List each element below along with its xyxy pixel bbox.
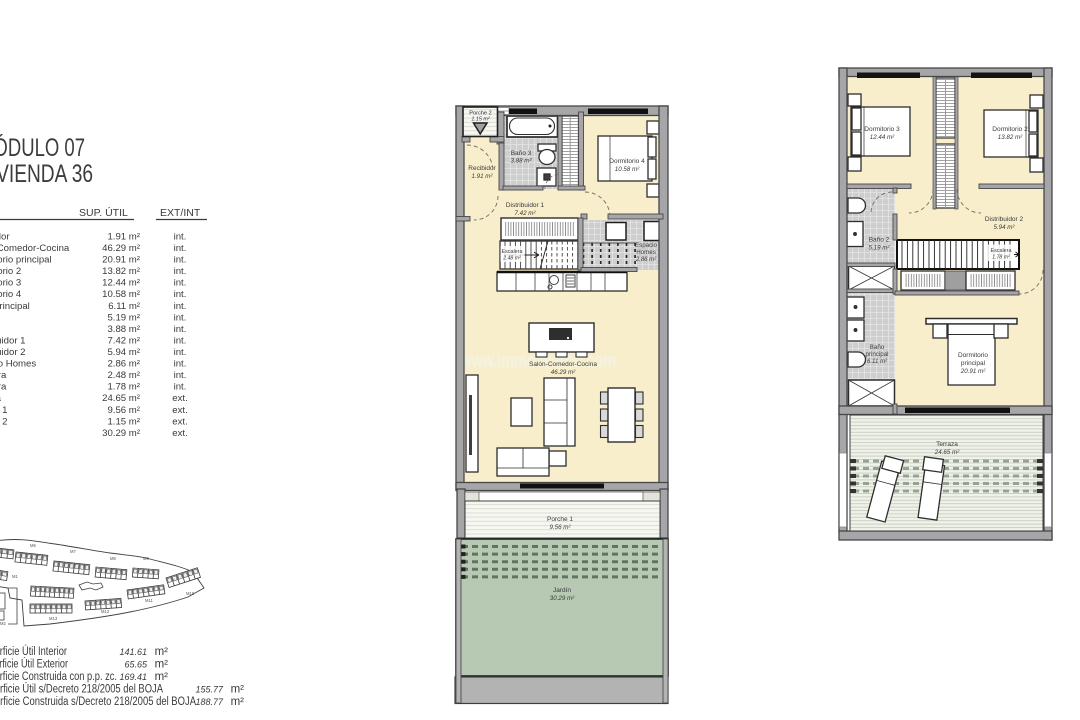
svg-text:principal: principal bbox=[961, 360, 986, 367]
svg-text:int.: int. bbox=[174, 347, 187, 358]
svg-text:Distribuidor 2: Distribuidor 2 bbox=[985, 216, 1024, 223]
svg-text:Salón-Comedor-Cocina: Salón-Comedor-Cocina bbox=[529, 361, 597, 368]
svg-text:6.11 m²: 6.11 m² bbox=[867, 359, 888, 365]
svg-text:20.91 m²: 20.91 m² bbox=[960, 368, 986, 375]
svg-text:1.91 m²: 1.91 m² bbox=[472, 173, 494, 180]
svg-text:M6: M6 bbox=[30, 543, 36, 548]
svg-text:169.41: 169.41 bbox=[119, 672, 147, 682]
svg-text:M2: M2 bbox=[0, 621, 6, 626]
svg-text:Espacio: Espacio bbox=[635, 242, 658, 249]
svg-text:int.: int. bbox=[174, 335, 187, 346]
svg-text:20.91 m²: 20.91 m² bbox=[102, 255, 141, 266]
svg-text:3.88 m²: 3.88 m² bbox=[107, 324, 140, 335]
svg-text:Distribuidor 1: Distribuidor 1 bbox=[0, 335, 26, 346]
svg-text:188.77: 188.77 bbox=[195, 697, 224, 707]
svg-text:m²: m² bbox=[231, 684, 245, 696]
svg-text:5.94 m²: 5.94 m² bbox=[107, 347, 140, 358]
svg-text:24.65 m²: 24.65 m² bbox=[934, 449, 960, 456]
svg-text:12.44 m²: 12.44 m² bbox=[870, 134, 895, 141]
svg-text:5.19 m²: 5.19 m² bbox=[869, 245, 891, 252]
svg-text:Escalera: Escalera bbox=[0, 382, 7, 393]
svg-text:46.29 m²: 46.29 m² bbox=[102, 243, 141, 254]
svg-text:m²: m² bbox=[155, 671, 169, 683]
svg-text:9.56 m²: 9.56 m² bbox=[107, 405, 140, 416]
svg-text:Espacio Homes: Espacio Homes bbox=[0, 359, 36, 370]
svg-text:Superficie Útil s/Decreto 218/: Superficie Útil s/Decreto 218/2005 del B… bbox=[0, 683, 163, 696]
svg-text:65.65: 65.65 bbox=[124, 660, 148, 670]
svg-text:int.: int. bbox=[174, 301, 187, 312]
svg-text:int.: int. bbox=[174, 312, 187, 323]
svg-text:30.29 m²: 30.29 m² bbox=[550, 595, 575, 602]
svg-text:Dormitorio 4: Dormitorio 4 bbox=[609, 158, 645, 165]
svg-text:Recibidor: Recibidor bbox=[0, 232, 10, 243]
svg-text:6.11 m²: 6.11 m² bbox=[108, 301, 141, 312]
svg-text:Porche 1: Porche 1 bbox=[547, 516, 573, 523]
svg-text:Distribuidor 2: Distribuidor 2 bbox=[0, 347, 26, 358]
svg-text:M7: M7 bbox=[70, 549, 76, 554]
svg-text:30.29 m²: 30.29 m² bbox=[102, 428, 141, 439]
svg-text:M12: M12 bbox=[101, 609, 110, 614]
svg-text:int.: int. bbox=[174, 370, 187, 381]
svg-text:2.86 m²: 2.86 m² bbox=[635, 257, 657, 263]
svg-text:Homes: Homes bbox=[636, 249, 656, 256]
svg-text:EXT/INT: EXT/INT bbox=[160, 207, 201, 219]
svg-text:Terraza: Terraza bbox=[936, 441, 958, 448]
svg-text:Jardín: Jardín bbox=[553, 587, 571, 594]
svg-text:10.58 m²: 10.58 m² bbox=[102, 289, 141, 300]
svg-text:Escalera: Escalera bbox=[991, 248, 1012, 254]
svg-text:Baño 2: Baño 2 bbox=[869, 237, 890, 244]
svg-text:m²: m² bbox=[155, 659, 169, 671]
svg-text:Baño 3: Baño 3 bbox=[511, 150, 532, 157]
svg-text:5.94 m²: 5.94 m² bbox=[994, 224, 1016, 231]
svg-text:Porche 2: Porche 2 bbox=[0, 416, 7, 427]
svg-text:ext.: ext. bbox=[172, 393, 187, 404]
svg-text:Superficie Útil Exterior: Superficie Útil Exterior bbox=[0, 658, 68, 671]
svg-text:int.: int. bbox=[174, 232, 187, 243]
svg-text:Dormitorio 4: Dormitorio 4 bbox=[0, 289, 22, 300]
svg-text:12.44 m²: 12.44 m² bbox=[102, 278, 141, 289]
svg-text:ext.: ext. bbox=[172, 428, 187, 439]
svg-text:155.77: 155.77 bbox=[195, 685, 224, 695]
svg-text:141.61: 141.61 bbox=[119, 647, 147, 657]
svg-text:SUP. ÚTIL: SUP. ÚTIL bbox=[79, 206, 128, 219]
svg-text:7.42 m²: 7.42 m² bbox=[515, 210, 537, 217]
svg-text:Superficie Construida con p.p.: Superficie Construida con p.p. zc. bbox=[0, 671, 117, 683]
svg-text:int.: int. bbox=[174, 266, 187, 277]
svg-text:9.56 m²: 9.56 m² bbox=[550, 524, 572, 531]
svg-text:5.19 m²: 5.19 m² bbox=[107, 312, 140, 323]
svg-text:Escalera: Escalera bbox=[502, 249, 523, 255]
svg-text:int.: int. bbox=[174, 324, 187, 335]
svg-text:Dormitorio 2: Dormitorio 2 bbox=[992, 126, 1028, 133]
svg-text:1.91 m²: 1.91 m² bbox=[107, 232, 140, 243]
svg-text:1.78 m²: 1.78 m² bbox=[992, 255, 1010, 261]
svg-text:2.48 m²: 2.48 m² bbox=[107, 370, 140, 381]
svg-text:M8: M8 bbox=[110, 556, 116, 561]
svg-text:M9: M9 bbox=[143, 556, 149, 561]
svg-text:Baño principal: Baño principal bbox=[0, 301, 30, 312]
svg-text:46.29 m²: 46.29 m² bbox=[551, 369, 576, 376]
svg-text:Escalera: Escalera bbox=[0, 370, 7, 381]
svg-text:1.78 m²: 1.78 m² bbox=[107, 382, 140, 393]
svg-text:Porche 1: Porche 1 bbox=[0, 405, 7, 416]
svg-text:int.: int. bbox=[174, 243, 187, 254]
svg-text:int.: int. bbox=[174, 289, 187, 300]
svg-text:Dormitorio 2: Dormitorio 2 bbox=[0, 266, 21, 277]
svg-text:2.86 m²: 2.86 m² bbox=[107, 359, 140, 370]
svg-text:M10: M10 bbox=[186, 591, 195, 596]
svg-text:m²: m² bbox=[231, 696, 245, 708]
svg-text:Superficie Construida s/Decret: Superficie Construida s/Decreto 218/2005… bbox=[0, 696, 196, 708]
svg-text:M11: M11 bbox=[145, 598, 154, 603]
svg-text:3.88 m²: 3.88 m² bbox=[511, 158, 533, 165]
svg-text:7.42 m²: 7.42 m² bbox=[107, 335, 140, 346]
svg-text:Superficie Útil Interior: Superficie Útil Interior bbox=[0, 645, 67, 658]
svg-text:int.: int. bbox=[174, 278, 187, 289]
svg-text:Dormitorio principal: Dormitorio principal bbox=[0, 255, 52, 266]
svg-text:M13: M13 bbox=[49, 616, 58, 621]
svg-text:1.15 m²: 1.15 m² bbox=[471, 117, 489, 123]
svg-text:2.48 m²: 2.48 m² bbox=[502, 256, 521, 262]
svg-text:MÓDULO 07: MÓDULO 07 bbox=[0, 133, 85, 162]
svg-text:int.: int. bbox=[174, 382, 187, 393]
svg-text:Terraza: Terraza bbox=[0, 393, 2, 404]
svg-text:Dormitorio 3: Dormitorio 3 bbox=[0, 278, 21, 289]
svg-text:Dormitorio: Dormitorio bbox=[958, 352, 988, 359]
svg-text:Baño: Baño bbox=[870, 344, 885, 351]
svg-text:M1: M1 bbox=[12, 574, 18, 579]
svg-text:int.: int. bbox=[174, 359, 187, 370]
svg-text:24.65 m²: 24.65 m² bbox=[102, 393, 141, 404]
svg-text:Distribuidor 1: Distribuidor 1 bbox=[506, 202, 545, 209]
svg-text:ext.: ext. bbox=[172, 405, 187, 416]
svg-text:int.: int. bbox=[174, 255, 187, 266]
svg-text:VIVIENDA 36: VIVIENDA 36 bbox=[0, 160, 93, 188]
svg-text:principal: principal bbox=[865, 351, 888, 358]
svg-text:13.82 m²: 13.82 m² bbox=[998, 134, 1023, 141]
svg-text:10.58 m²: 10.58 m² bbox=[615, 166, 640, 173]
svg-text:m²: m² bbox=[155, 646, 169, 658]
svg-text:ext.: ext. bbox=[172, 416, 187, 427]
svg-text:13.82 m²: 13.82 m² bbox=[102, 266, 141, 277]
svg-text:Salón-Comedor-Cocina: Salón-Comedor-Cocina bbox=[0, 243, 70, 254]
svg-text:1.15 m²: 1.15 m² bbox=[107, 416, 140, 427]
svg-text:Dormitorio 3: Dormitorio 3 bbox=[864, 126, 900, 133]
